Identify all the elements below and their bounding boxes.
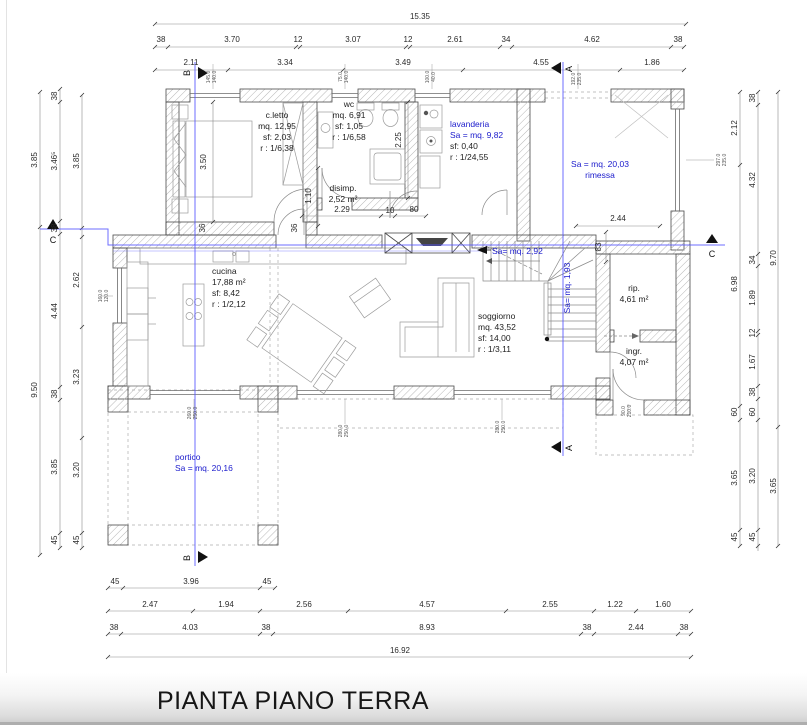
shower	[370, 149, 405, 184]
dimension-label: 1.60	[655, 600, 671, 609]
section-letter: C	[50, 235, 57, 245]
room-label: Sa = mq. 20,16	[175, 463, 233, 473]
room-label: 4,61 m²	[620, 294, 649, 304]
front-door	[613, 369, 644, 400]
room-label: mq. 6,91	[332, 110, 365, 120]
window-size-label: 250.0	[501, 421, 507, 434]
room-label: Sa = mq. 9,82	[450, 130, 503, 140]
dimension-label: 38	[50, 223, 59, 232]
dimension-label: 9.50	[30, 382, 39, 398]
dimension-label: 38	[50, 91, 59, 100]
kitchen-sink	[213, 251, 233, 262]
section-arrow-c-right	[706, 234, 718, 243]
laundry-door	[482, 190, 507, 215]
dimension-label: 3.85	[72, 153, 81, 169]
bidet-tank	[382, 103, 399, 110]
dimension-label: 3.20	[748, 468, 757, 484]
dimension-label: 1.10	[304, 188, 313, 204]
title-band: PIANTA PIANO TERRA	[0, 673, 807, 725]
dimension-label: 45	[111, 577, 120, 586]
bed	[186, 121, 252, 197]
dimension-label: 45	[748, 532, 757, 541]
dimension-label: 38	[583, 623, 592, 632]
bedroom-door	[274, 189, 307, 222]
dimension-label: 3.96	[183, 577, 199, 586]
dimension-label: 2.11	[184, 58, 200, 67]
room-label: r : 1/2,12	[212, 299, 246, 309]
fridge	[127, 288, 148, 314]
patio-outline	[278, 399, 563, 428]
oven-column	[127, 314, 148, 340]
dining-table	[262, 304, 342, 383]
dimension-label: 3.34	[277, 58, 293, 67]
dimension-label: 3.49	[395, 58, 411, 67]
drawing-title: PIANTA PIANO TERRA	[157, 687, 429, 716]
dimension-label: 2.29	[334, 205, 350, 214]
section-letters: BBAACC	[50, 66, 716, 561]
dimension-label: 38	[110, 623, 119, 632]
stair-rail	[544, 283, 551, 335]
dimension-label: 12	[748, 328, 757, 337]
bidet	[383, 110, 398, 127]
chair	[336, 340, 356, 361]
door-arrow	[632, 333, 639, 339]
dimension-label: 83	[594, 242, 603, 251]
section-arrow-a-top	[551, 62, 561, 74]
area-notes: Sa= mq. 2,92Sa= mq. 1,93	[492, 246, 572, 313]
dimension-label: 38	[262, 623, 271, 632]
dimension-label: 4.32	[748, 172, 757, 188]
dimension-label: 34	[502, 35, 511, 44]
dimension-label: 4.62	[584, 35, 600, 44]
dimension-label: 3.85	[30, 152, 39, 168]
dimension-label: 2.12	[730, 120, 739, 136]
room-label: sf: 0,40	[450, 141, 478, 151]
dimension-label: 4.55	[533, 58, 549, 67]
area-note: Sa= mq. 2,92	[492, 246, 543, 256]
room-label: portico	[175, 452, 201, 462]
room-label: rimessa	[585, 170, 615, 180]
wc-sink	[318, 112, 333, 148]
chair	[247, 327, 267, 348]
dimension-label: 45	[50, 535, 59, 544]
burner	[195, 299, 202, 306]
dimension-label: 3.07	[345, 35, 361, 44]
room-label: r : 1/6,58	[332, 132, 366, 142]
dimension-label: 38	[748, 93, 757, 102]
dimension-label: 1.67	[748, 354, 757, 370]
room-label: rip.	[628, 283, 640, 293]
room-label: cucina	[212, 266, 237, 276]
dimension-label: 60	[748, 407, 757, 416]
dimension-label: 12	[294, 35, 303, 44]
dimension-label: 16.92	[390, 646, 411, 655]
sofa	[400, 278, 474, 357]
room-label: 17,88 m²	[212, 277, 246, 287]
area-note: Sa= mq. 1,93	[562, 262, 572, 313]
room-label: r : 1/6,38	[260, 143, 294, 153]
dimension-label: 9.70	[769, 250, 778, 266]
room-label: lavanderia	[450, 119, 489, 129]
room-label: mq. 12,95	[258, 121, 296, 131]
floor-plan-page: 145.0140.075.0140.0100.040.0192.0235.029…	[0, 0, 807, 725]
dimension-label: 36	[290, 223, 299, 232]
dimension-label: 1.89	[748, 290, 757, 306]
section-letter: A	[564, 445, 574, 451]
window-size-label: 250.0	[344, 425, 350, 438]
dimension-label: 10	[386, 206, 395, 215]
room-label: ingr.	[626, 346, 642, 356]
dimension-label: 4.57	[419, 600, 435, 609]
dimension-label: 38	[680, 623, 689, 632]
burner	[186, 313, 193, 320]
armchair	[349, 278, 390, 318]
dining-set	[247, 294, 356, 394]
portico-pillar	[108, 525, 128, 545]
burner	[195, 313, 202, 320]
room-label: 2,52 m²	[329, 194, 358, 204]
dimension-label: 80	[410, 205, 419, 214]
window-size-label: 235.0	[577, 73, 583, 86]
room-label: sf: 8,42	[212, 288, 240, 298]
toilet-tank	[357, 103, 374, 110]
chair	[325, 357, 345, 378]
window-size-label: 140.0	[212, 71, 218, 84]
dimension-label: 45	[730, 532, 739, 541]
dimension-label: 38	[50, 389, 59, 398]
dimension-label: 3.65	[730, 470, 739, 486]
dimension-label: 2.55	[542, 600, 558, 609]
dimension-label: 45	[263, 577, 272, 586]
room-label: r : 1/3,11	[478, 344, 511, 354]
portico-pillar	[108, 386, 128, 412]
section-letter: A	[564, 66, 574, 72]
dimension-label: 15.35	[410, 12, 431, 21]
sofa-cushions	[405, 283, 469, 352]
section-letter: B	[182, 555, 192, 561]
dimension-label: 38	[748, 387, 757, 396]
dimension-label: 8.93	[419, 623, 435, 632]
section-letter: B	[182, 70, 192, 76]
dimension-label: 2.62	[72, 272, 81, 288]
room-label: Sa = mq. 20,03	[571, 159, 629, 169]
dimension-label: 2.44	[628, 623, 644, 632]
kitchen-counter	[140, 248, 406, 264]
dimension-label: 3.23	[72, 369, 81, 385]
window-size-label: 250.0	[193, 407, 199, 420]
window-size-label: 120.0	[104, 290, 110, 303]
dimension-label: 3.85	[50, 459, 59, 475]
burner	[186, 299, 193, 306]
bedroom-left-wall	[166, 102, 179, 235]
dimension-label: 60	[730, 407, 739, 416]
dimension-label: 3.50	[199, 154, 208, 170]
kitchen-side-counter	[127, 262, 148, 386]
dimension-label: 45	[72, 535, 81, 544]
room-label: 4,07 m²	[620, 357, 649, 367]
portico-pillar	[258, 386, 278, 412]
dimension-label: 1.86	[644, 58, 660, 67]
dimension-label: 6.98	[730, 276, 739, 292]
dimension-label: 36	[198, 223, 207, 232]
dimension-label: 3.65	[769, 478, 778, 494]
room-label: c.letto	[266, 110, 289, 120]
dimension-label: 38	[157, 35, 166, 44]
section-arrow-b-bottom	[198, 551, 208, 563]
dimension-label: 4.44	[50, 303, 59, 319]
window-size-label: 235.0	[722, 154, 728, 167]
chair	[258, 310, 278, 331]
dimension-label: 1.22	[607, 600, 623, 609]
floor-plan-svg: 145.0140.075.0140.0100.040.0192.0235.029…	[0, 0, 807, 673]
dimension-label: 2.56	[296, 600, 312, 609]
entry-patio-outline	[596, 415, 693, 455]
newel-post	[545, 337, 549, 341]
window-size-label: 210.0	[627, 405, 633, 418]
stairs-direction-arrow	[486, 258, 492, 264]
window-size-label: 40.0	[431, 72, 437, 82]
chair	[270, 294, 290, 315]
portico-pillar	[258, 525, 278, 545]
section-letter: C	[709, 249, 716, 259]
dimension-label: 34	[748, 255, 757, 264]
fireplace	[385, 233, 470, 253]
dimension-label: 2.61	[447, 35, 463, 44]
dimension-label: 2.47	[142, 600, 158, 609]
dimension-label: 3.70	[224, 35, 240, 44]
dimension-label: 38	[674, 35, 683, 44]
dimension-label: 1.94	[218, 600, 234, 609]
window-size-label: 140.0	[344, 71, 350, 84]
dimension-label: 3.20	[72, 462, 81, 478]
room-label: wc	[343, 99, 355, 109]
room-label: sf: 2,03	[263, 132, 291, 142]
laundry-sink	[420, 156, 440, 188]
dimension-label: 2.25	[394, 132, 403, 148]
section-arrows	[47, 62, 718, 563]
dimension-label: 3.46⁵	[50, 152, 59, 171]
room-label: r : 1/24,55	[450, 152, 489, 162]
room-label: sf: 14,00	[478, 333, 511, 343]
section-arrow-a-bottom	[551, 441, 561, 453]
dimension-label: 12	[404, 35, 413, 44]
room-label: disimp.	[330, 183, 357, 193]
room-label: sf: 1,05	[335, 121, 363, 131]
dimension-label: 2.44	[610, 214, 626, 223]
dimension-label: 4.03	[182, 623, 198, 632]
room-label: soggiorno	[478, 311, 516, 321]
room-label: mq. 43,52	[478, 322, 516, 332]
